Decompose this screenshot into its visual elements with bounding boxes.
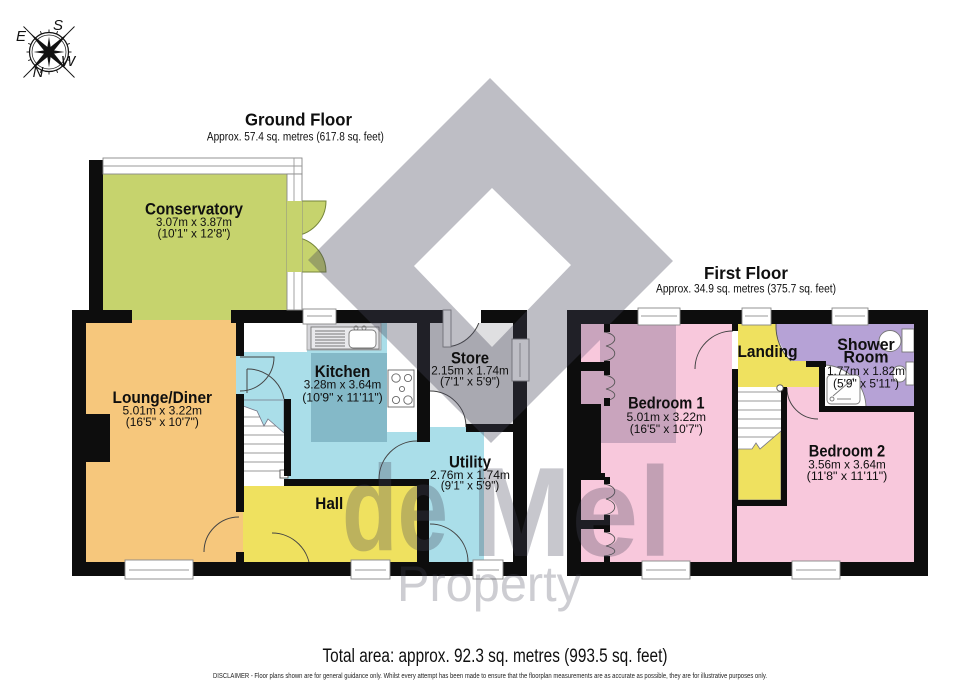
svg-text:(9'1" x 5'9"): (9'1" x 5'9"): [441, 479, 499, 493]
svg-text:Landing: Landing: [738, 343, 798, 361]
svg-text:Property: Property: [397, 556, 581, 612]
svg-text:(10'9" x 11'11"): (10'9" x 11'11"): [302, 390, 383, 404]
svg-text:N: N: [33, 64, 44, 81]
svg-text:(5'9" x 5'11"): (5'9" x 5'11"): [833, 377, 899, 391]
svg-text:Approx. 34.9 sq. metres (375.7: Approx. 34.9 sq. metres (375.7 sq. feet): [656, 284, 836, 296]
svg-text:S: S: [53, 17, 63, 34]
svg-text:Ground Floor: Ground Floor: [245, 109, 352, 129]
svg-text:Hall: Hall: [315, 495, 343, 513]
svg-text:(16'5" x 10'7"): (16'5" x 10'7"): [126, 415, 199, 429]
svg-text:Total area: approx. 92.3 sq. m: Total area: approx. 92.3 sq. metres (993…: [323, 646, 668, 667]
svg-text:(10'1" x 12'8"): (10'1" x 12'8"): [158, 227, 231, 241]
svg-text:(7'1" x 5'9"): (7'1" x 5'9"): [440, 374, 500, 388]
svg-text:W: W: [61, 53, 77, 70]
svg-text:Approx. 57.4 sq. metres (617.8: Approx. 57.4 sq. metres (617.8 sq. feet): [207, 132, 384, 144]
svg-text:E: E: [16, 28, 27, 45]
svg-text:(11'8" x 11'11"): (11'8" x 11'11"): [807, 469, 888, 483]
svg-text:(16'5" x 10'7"): (16'5" x 10'7"): [630, 422, 703, 436]
svg-text:DISCLAIMER - Floor plans sho: DISCLAIMER - Floor plans shown are for g…: [213, 673, 767, 680]
svg-text:First Floor: First Floor: [704, 263, 788, 283]
